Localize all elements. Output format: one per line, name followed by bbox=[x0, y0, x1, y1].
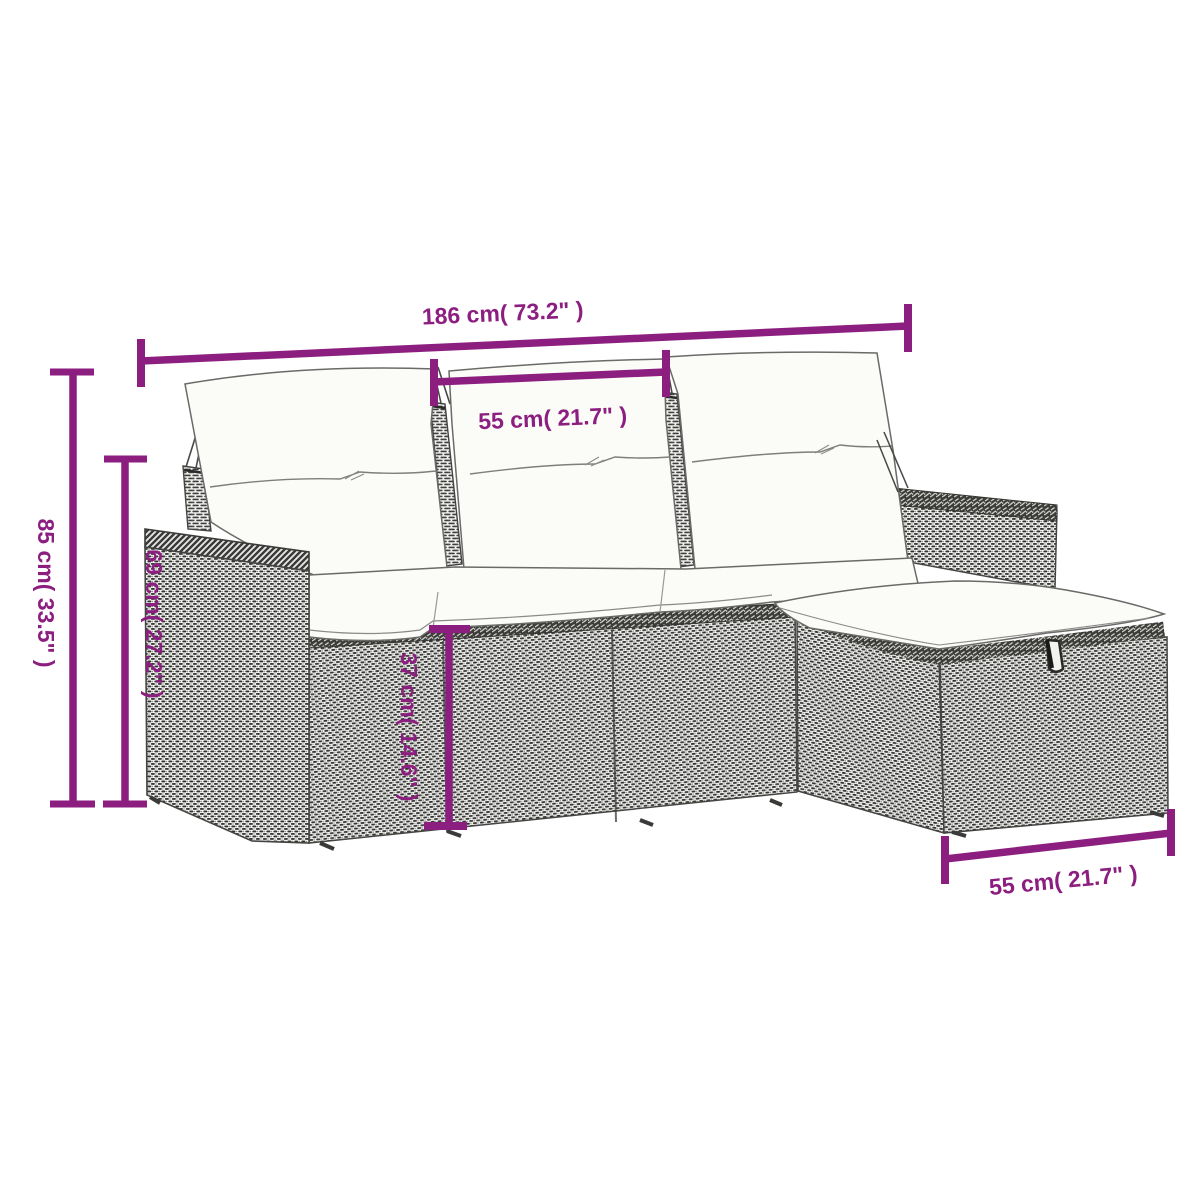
svg-text:69 cm( 27.2" ): 69 cm( 27.2" ) bbox=[141, 550, 167, 699]
svg-text:37 cm( 14.6" ): 37 cm( 14.6" ) bbox=[396, 653, 422, 802]
svg-text:85 cm( 33.5" ): 85 cm( 33.5" ) bbox=[33, 519, 59, 668]
